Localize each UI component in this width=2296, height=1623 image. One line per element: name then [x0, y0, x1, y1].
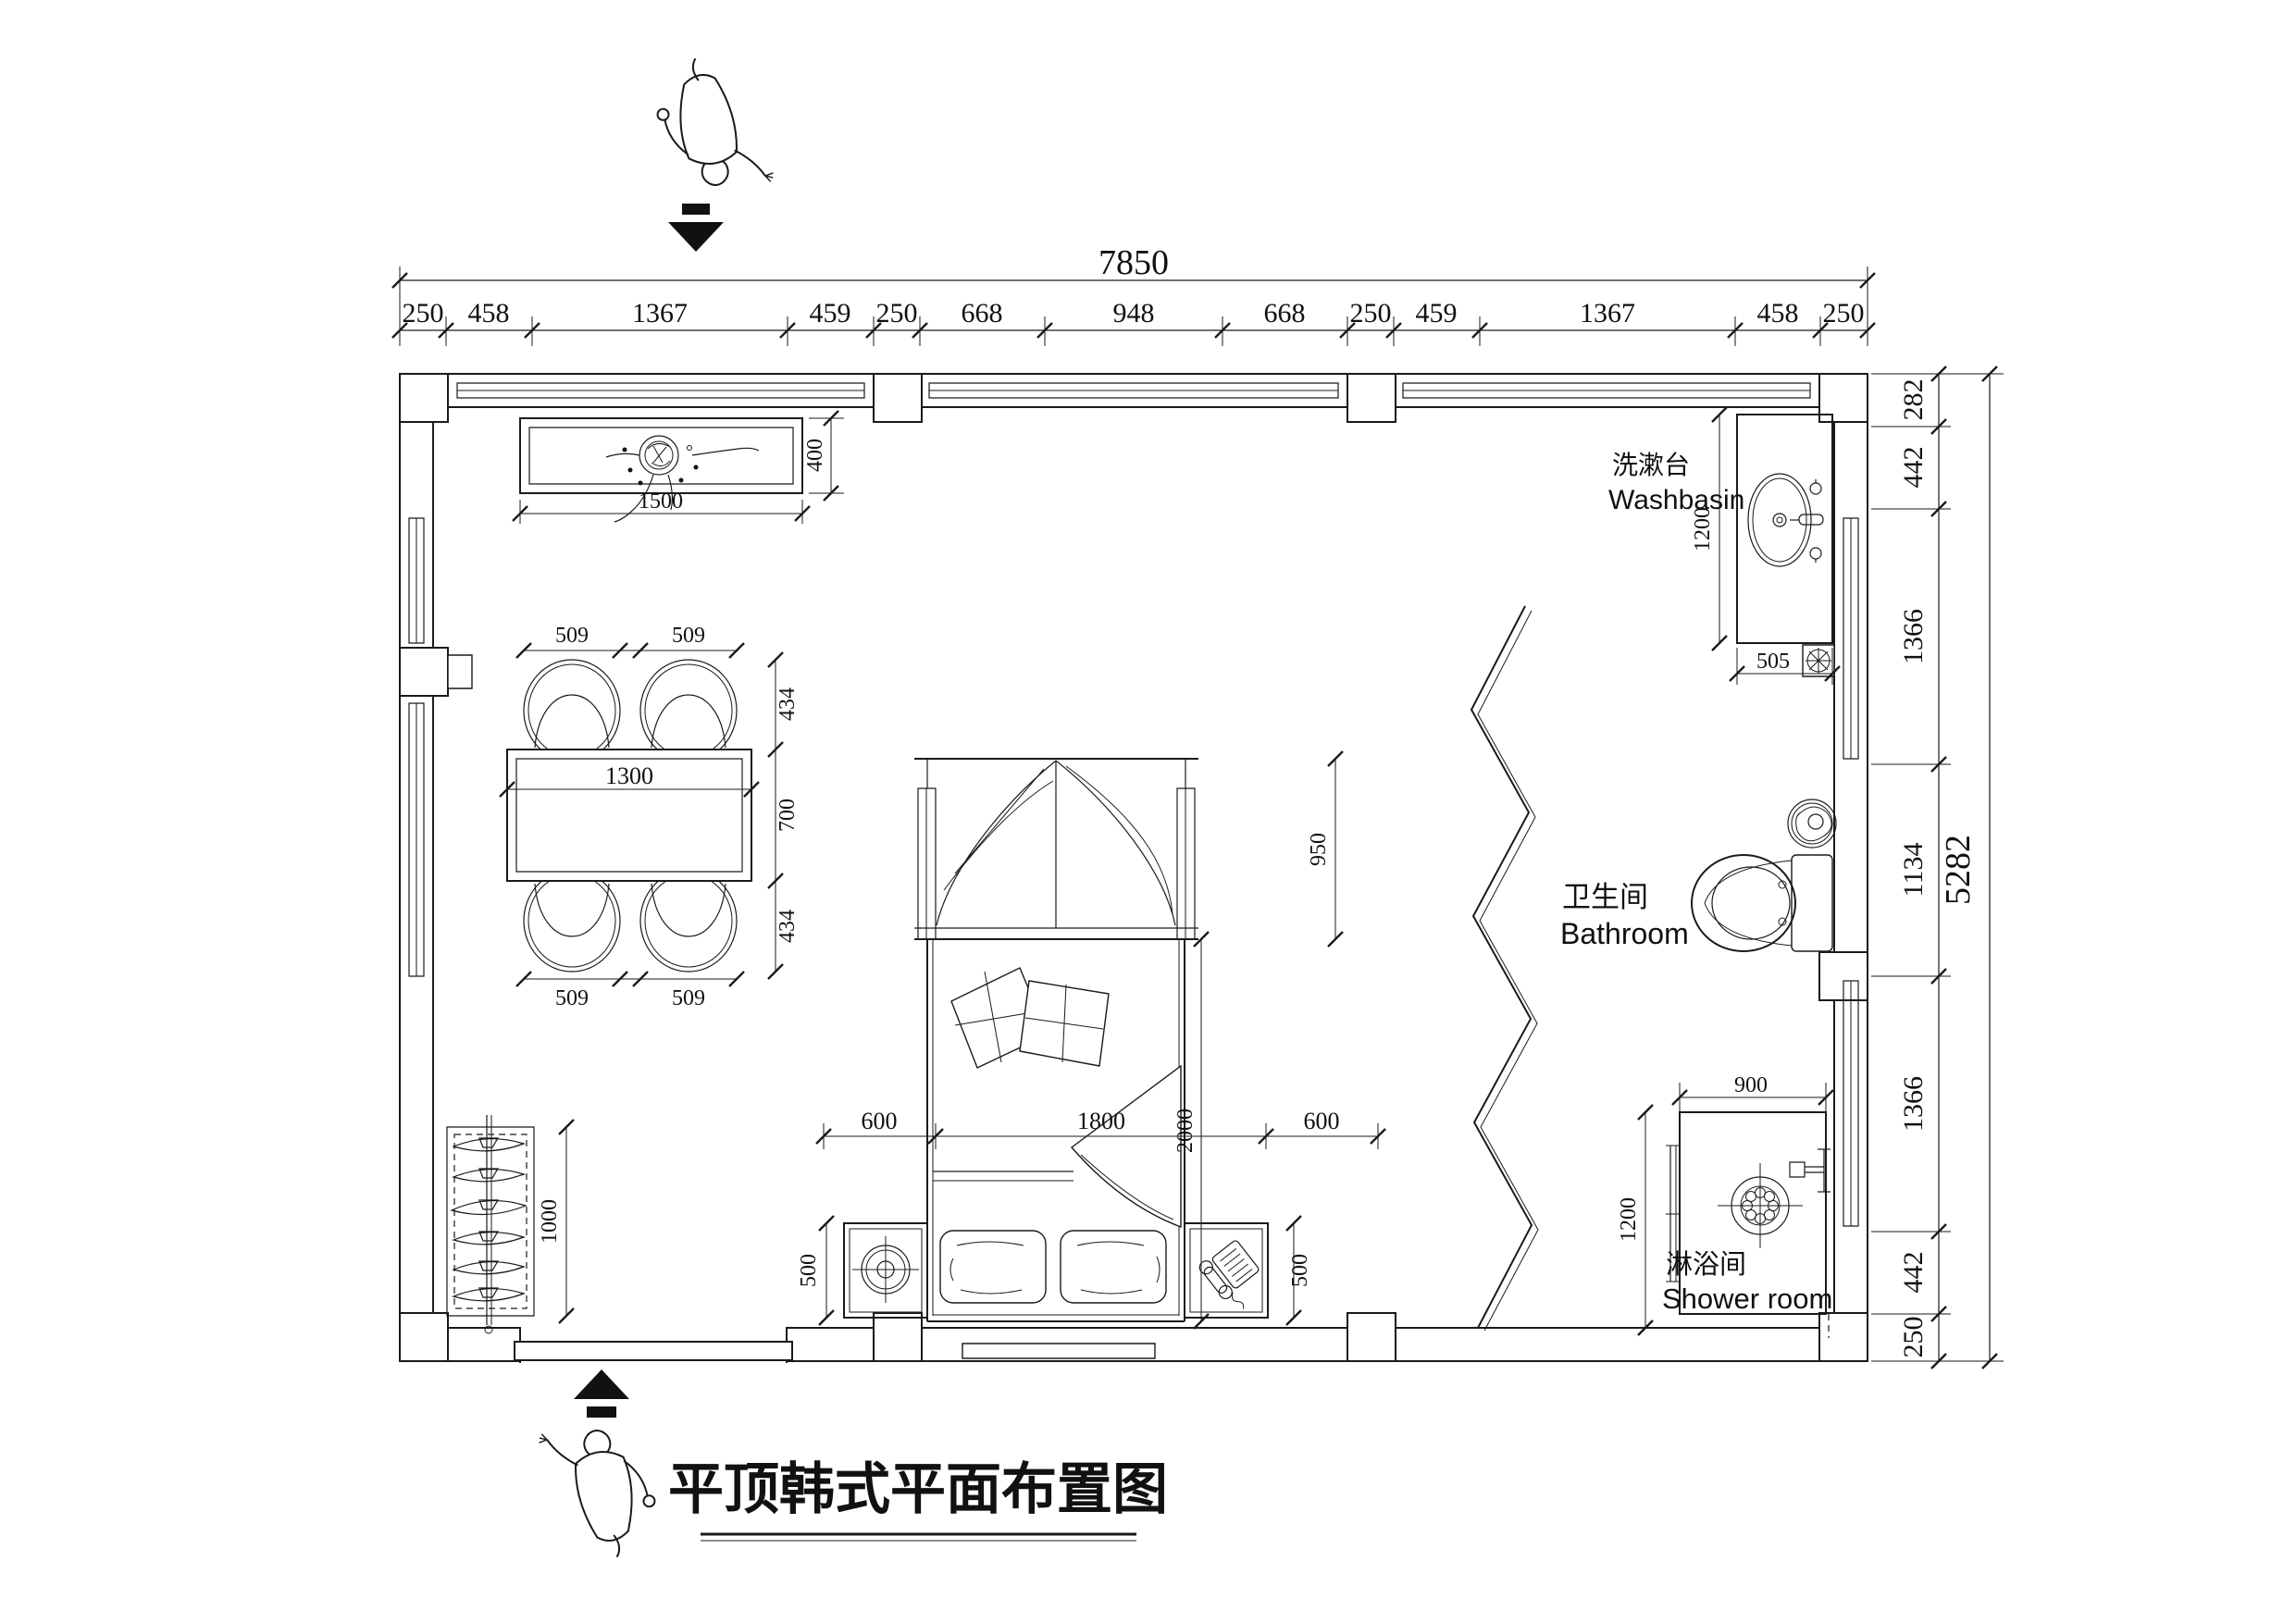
dim-right-chain: 282 442 1366 1134 1366 442 250 — [1871, 366, 2004, 1369]
dim-label: 509 — [555, 986, 589, 1010]
dim-label-right-total: 5282 — [1939, 835, 1978, 905]
room-label-washbasin-zh: 洗漱台 — [1612, 451, 1690, 479]
dim-label: 600 — [862, 1108, 898, 1134]
dim-label: 2000 — [1173, 1109, 1198, 1153]
dim-label: 948 — [1113, 298, 1155, 328]
dim-label: 250 — [1898, 1317, 1929, 1358]
sleeping-pillows — [940, 1231, 1166, 1303]
floorplan-page: 7850 250 458 1367 459 250 668 948 668 25… — [0, 0, 2296, 1623]
dim-label: 668 — [962, 298, 1003, 328]
dim-label: 505 — [1756, 650, 1790, 674]
floor-drain-icon — [1803, 645, 1834, 676]
dim-label: 900 — [1734, 1073, 1768, 1097]
dim-label: 1800 — [1077, 1108, 1125, 1134]
dim-label: 1366 — [1898, 1076, 1929, 1132]
bottom-wall-panel — [962, 1344, 1155, 1358]
dim-label: 250 — [876, 298, 918, 328]
dim-label: 500 — [1288, 1254, 1312, 1287]
bathroom-area: 卫生间 Bathroom — [1560, 799, 1836, 951]
dining-table: 1300 — [500, 750, 759, 881]
up-arrow-icon — [574, 1369, 629, 1399]
duvet-fold — [1072, 1066, 1181, 1227]
dim-label: 250 — [403, 298, 444, 328]
folding-door — [1471, 606, 1538, 1331]
dim-label: 509 — [555, 624, 589, 648]
room-label-shower-en: Shower room — [1662, 1282, 1832, 1315]
dim-label: 1300 — [605, 762, 653, 789]
clothes-rack: 1000 — [447, 1115, 574, 1333]
dim-label: 950 — [1307, 833, 1331, 866]
down-arrow-icon — [668, 222, 724, 252]
nightstand-right — [1185, 1223, 1272, 1318]
dim-label: 400 — [803, 439, 827, 472]
dim-label: 434 — [776, 688, 800, 721]
chair — [640, 660, 737, 762]
chair — [524, 870, 620, 972]
entry-door — [515, 1327, 792, 1363]
lamp-icon — [852, 1236, 919, 1303]
room-label-shower-zh: 淋浴间 — [1666, 1249, 1746, 1280]
dim-label: 1367 — [1580, 298, 1635, 328]
dim-label: 500 — [797, 1254, 821, 1287]
dining-set: 1300 509 509 509 509 434 700 434 — [500, 624, 800, 1010]
dim-label: 459 — [810, 298, 851, 328]
bed — [927, 939, 1185, 1321]
dim-label: 509 — [672, 624, 705, 648]
entry-figure-bottom — [538, 1369, 662, 1566]
dim-label: 1366 — [1898, 609, 1929, 664]
room-label-washbasin-en: Washbasin — [1608, 485, 1744, 515]
page-title: 平顶韩式平面布置图 — [668, 1458, 1168, 1520]
counter-cabinet: 1500 400 — [513, 411, 844, 524]
entry-figure-top — [651, 50, 775, 252]
dim-label: 250 — [1823, 298, 1865, 328]
dim-label: 1000 — [538, 1199, 562, 1244]
dim-label-top-total: 7850 — [1098, 243, 1169, 282]
dim-label: 442 — [1898, 447, 1929, 489]
dim-right-overall: 5282 — [1939, 366, 1997, 1369]
drawing-title: 平顶韩式平面布置图 — [668, 1458, 1168, 1541]
dim-label: 600 — [1304, 1108, 1340, 1134]
dim-label: 668 — [1264, 298, 1306, 328]
dim-label: 250 — [1350, 298, 1392, 328]
dim-label: 282 — [1898, 379, 1929, 421]
shower-area: 900 1200 淋浴间 Shower room — [1617, 1073, 1833, 1338]
dim-label: 1500 — [639, 489, 683, 514]
dim-label: 459 — [1416, 298, 1458, 328]
dim-label: 442 — [1898, 1252, 1929, 1294]
room-label-bathroom-zh: 卫生间 — [1562, 881, 1648, 913]
arrow-bar — [682, 204, 710, 215]
dim-label: 509 — [672, 986, 705, 1010]
toilet-icon — [1692, 855, 1832, 951]
dim-rack: 1000 — [538, 1120, 574, 1323]
dim-top-chain: 250 458 1367 459 250 668 948 668 250 459… — [392, 298, 1875, 346]
washbasin-area: 1200 505 洗漱台 Washbasin — [1608, 407, 1840, 685]
bed-canopy — [914, 759, 1198, 939]
nightstand-left — [844, 1223, 927, 1318]
hangers — [452, 1138, 526, 1301]
dim-label: 1367 — [632, 298, 688, 328]
bed-group: 600 1800 600 950 2000 500 500 — [797, 751, 1385, 1329]
dim-label: 458 — [1757, 298, 1799, 328]
chair — [524, 660, 620, 762]
telephone-icon — [1198, 1237, 1272, 1315]
dim-label: 1200 — [1617, 1197, 1641, 1242]
dim-label: 434 — [776, 910, 800, 943]
dim-label: 1134 — [1898, 843, 1929, 898]
dim-label: 700 — [776, 799, 800, 832]
sink-icon — [1748, 474, 1823, 566]
floor-plan-drawing: 7850 250 458 1367 459 250 668 948 668 25… — [0, 0, 2296, 1623]
fan-icon — [1788, 799, 1836, 848]
arrow-bar — [587, 1406, 616, 1418]
room-label-bathroom-en: Bathroom — [1560, 917, 1689, 950]
chair — [640, 870, 737, 972]
shower-head-icon — [1790, 1149, 1831, 1192]
throw-pillows — [951, 968, 1109, 1068]
dim-label: 458 — [468, 298, 510, 328]
